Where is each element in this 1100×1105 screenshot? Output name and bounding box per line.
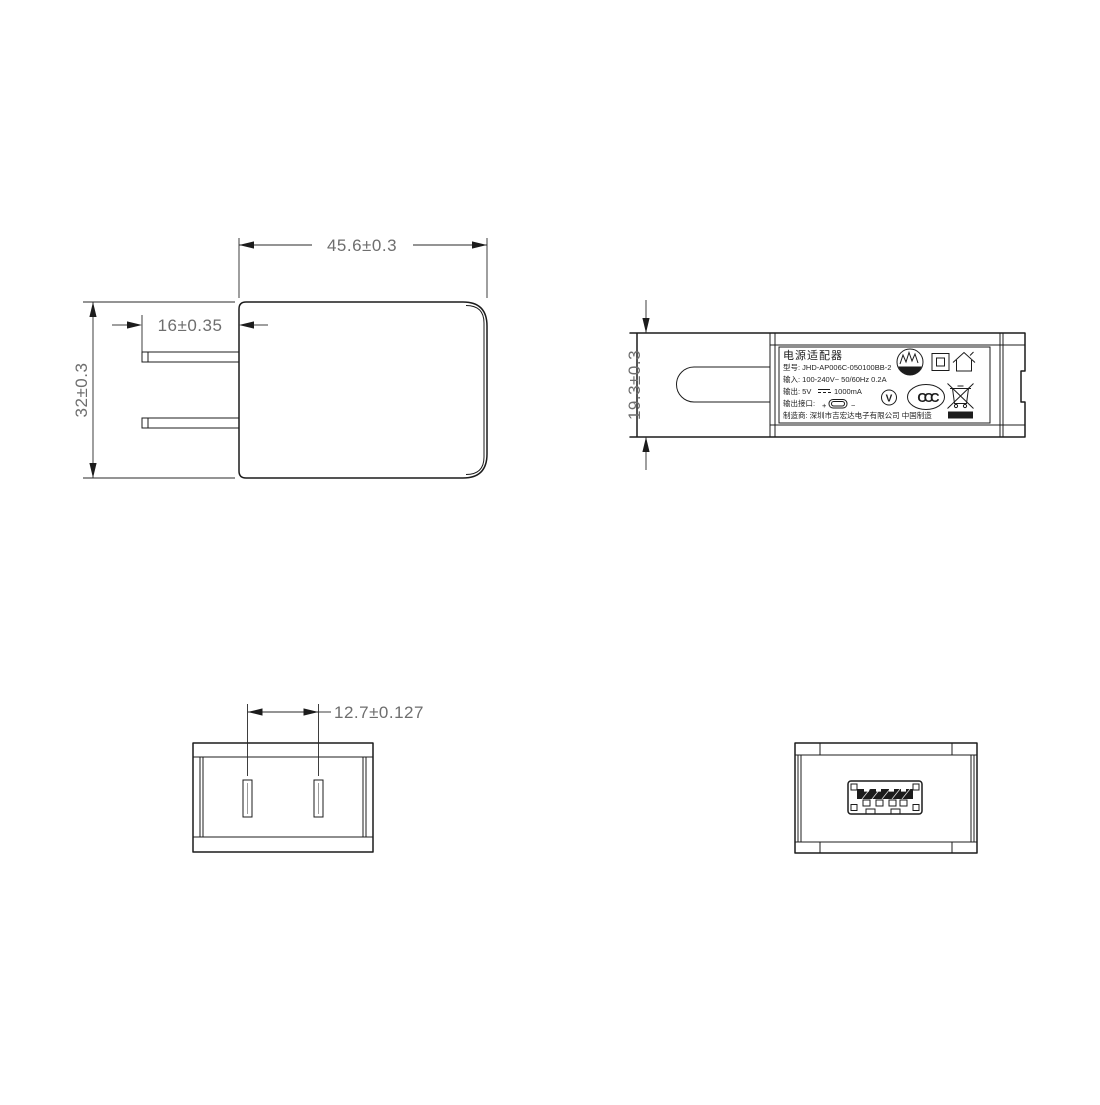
plug-prong-upper [142, 352, 239, 362]
case-parting-line [466, 306, 484, 475]
side-parting-lines [200, 757, 366, 837]
ccc-mark-icon: CCC [908, 385, 945, 410]
dimension-width: 45.6±0.3 [239, 236, 487, 298]
usb-end-view [795, 743, 977, 853]
svg-text:CCC: CCC [917, 390, 940, 405]
label-output-prefix: 输出: 5V [783, 386, 811, 396]
label-port: 输出接口: [783, 398, 815, 408]
adapter-label: 电源适配器 型号: JHD-AP006C-050100BB-2 输入: 100-… [779, 347, 990, 423]
label-output-current: 1000mA [834, 387, 862, 396]
label-manufacturer: 制造商: 深圳市吉宏达电子有限公司 中国制造 [783, 410, 932, 420]
technical-drawing: 45.6±0.3 16±0.35 32±0.3 [0, 0, 1100, 1100]
usb-a-port [848, 781, 922, 814]
plug-face-separator [770, 333, 775, 437]
dim-thickness-text: 19.3±0.3 [625, 350, 644, 420]
certification-circle-icon [897, 349, 923, 375]
side-body-outline [630, 333, 1025, 437]
plug-prong-lower [142, 418, 239, 428]
usb-contact-pins [863, 800, 907, 806]
drawing-sheet: 45.6±0.3 16±0.35 32±0.3 [0, 0, 1100, 1100]
efficiency-v-icon: V [882, 390, 897, 405]
dim-prong-length-text: 16±0.35 [158, 316, 223, 335]
prong-slot-left [243, 780, 252, 817]
top-body-outline [193, 743, 373, 852]
class-ii-icon [932, 354, 949, 371]
dim-height-text: 32±0.3 [72, 363, 91, 418]
dim-width-text: 45.6±0.3 [327, 236, 397, 255]
label-input: 输入: 100-240V~ 50/60Hz 0.2A [783, 374, 887, 384]
label-black-bar [948, 412, 973, 419]
dimension-prong-length: 16±0.35 [112, 315, 268, 352]
dc-symbol-icon [818, 390, 831, 393]
adapter-body-outline [239, 302, 487, 478]
dimension-prong-spacing: 12.7±0.127 [248, 703, 424, 776]
dimension-thickness: 19.3±0.3 [625, 300, 650, 470]
dim-prong-spacing-text: 12.7±0.127 [334, 703, 424, 722]
end-cap-separator [1000, 333, 1003, 437]
label-model: 型号: JHD-AP006C-050100BB-2 [783, 363, 891, 372]
prong-slot-right [314, 780, 323, 817]
weee-bin-icon [948, 384, 974, 409]
side-view: 19.3±0.3 电源适配器 型号: JHD-AP006C-050100BB-2… [625, 300, 1025, 470]
indoor-use-icon [953, 352, 975, 371]
top-view: 12.7±0.127 [193, 703, 424, 852]
usb-tongue [857, 789, 913, 799]
usb-connector-icon [829, 400, 847, 409]
label-port-minus: − [851, 401, 856, 410]
label-port-plus: + [822, 401, 827, 410]
label-title: 电源适配器 [783, 348, 843, 362]
side-prong [677, 367, 771, 402]
svg-text:V: V [886, 394, 893, 405]
front-view: 45.6±0.3 16±0.35 32±0.3 [72, 236, 487, 478]
